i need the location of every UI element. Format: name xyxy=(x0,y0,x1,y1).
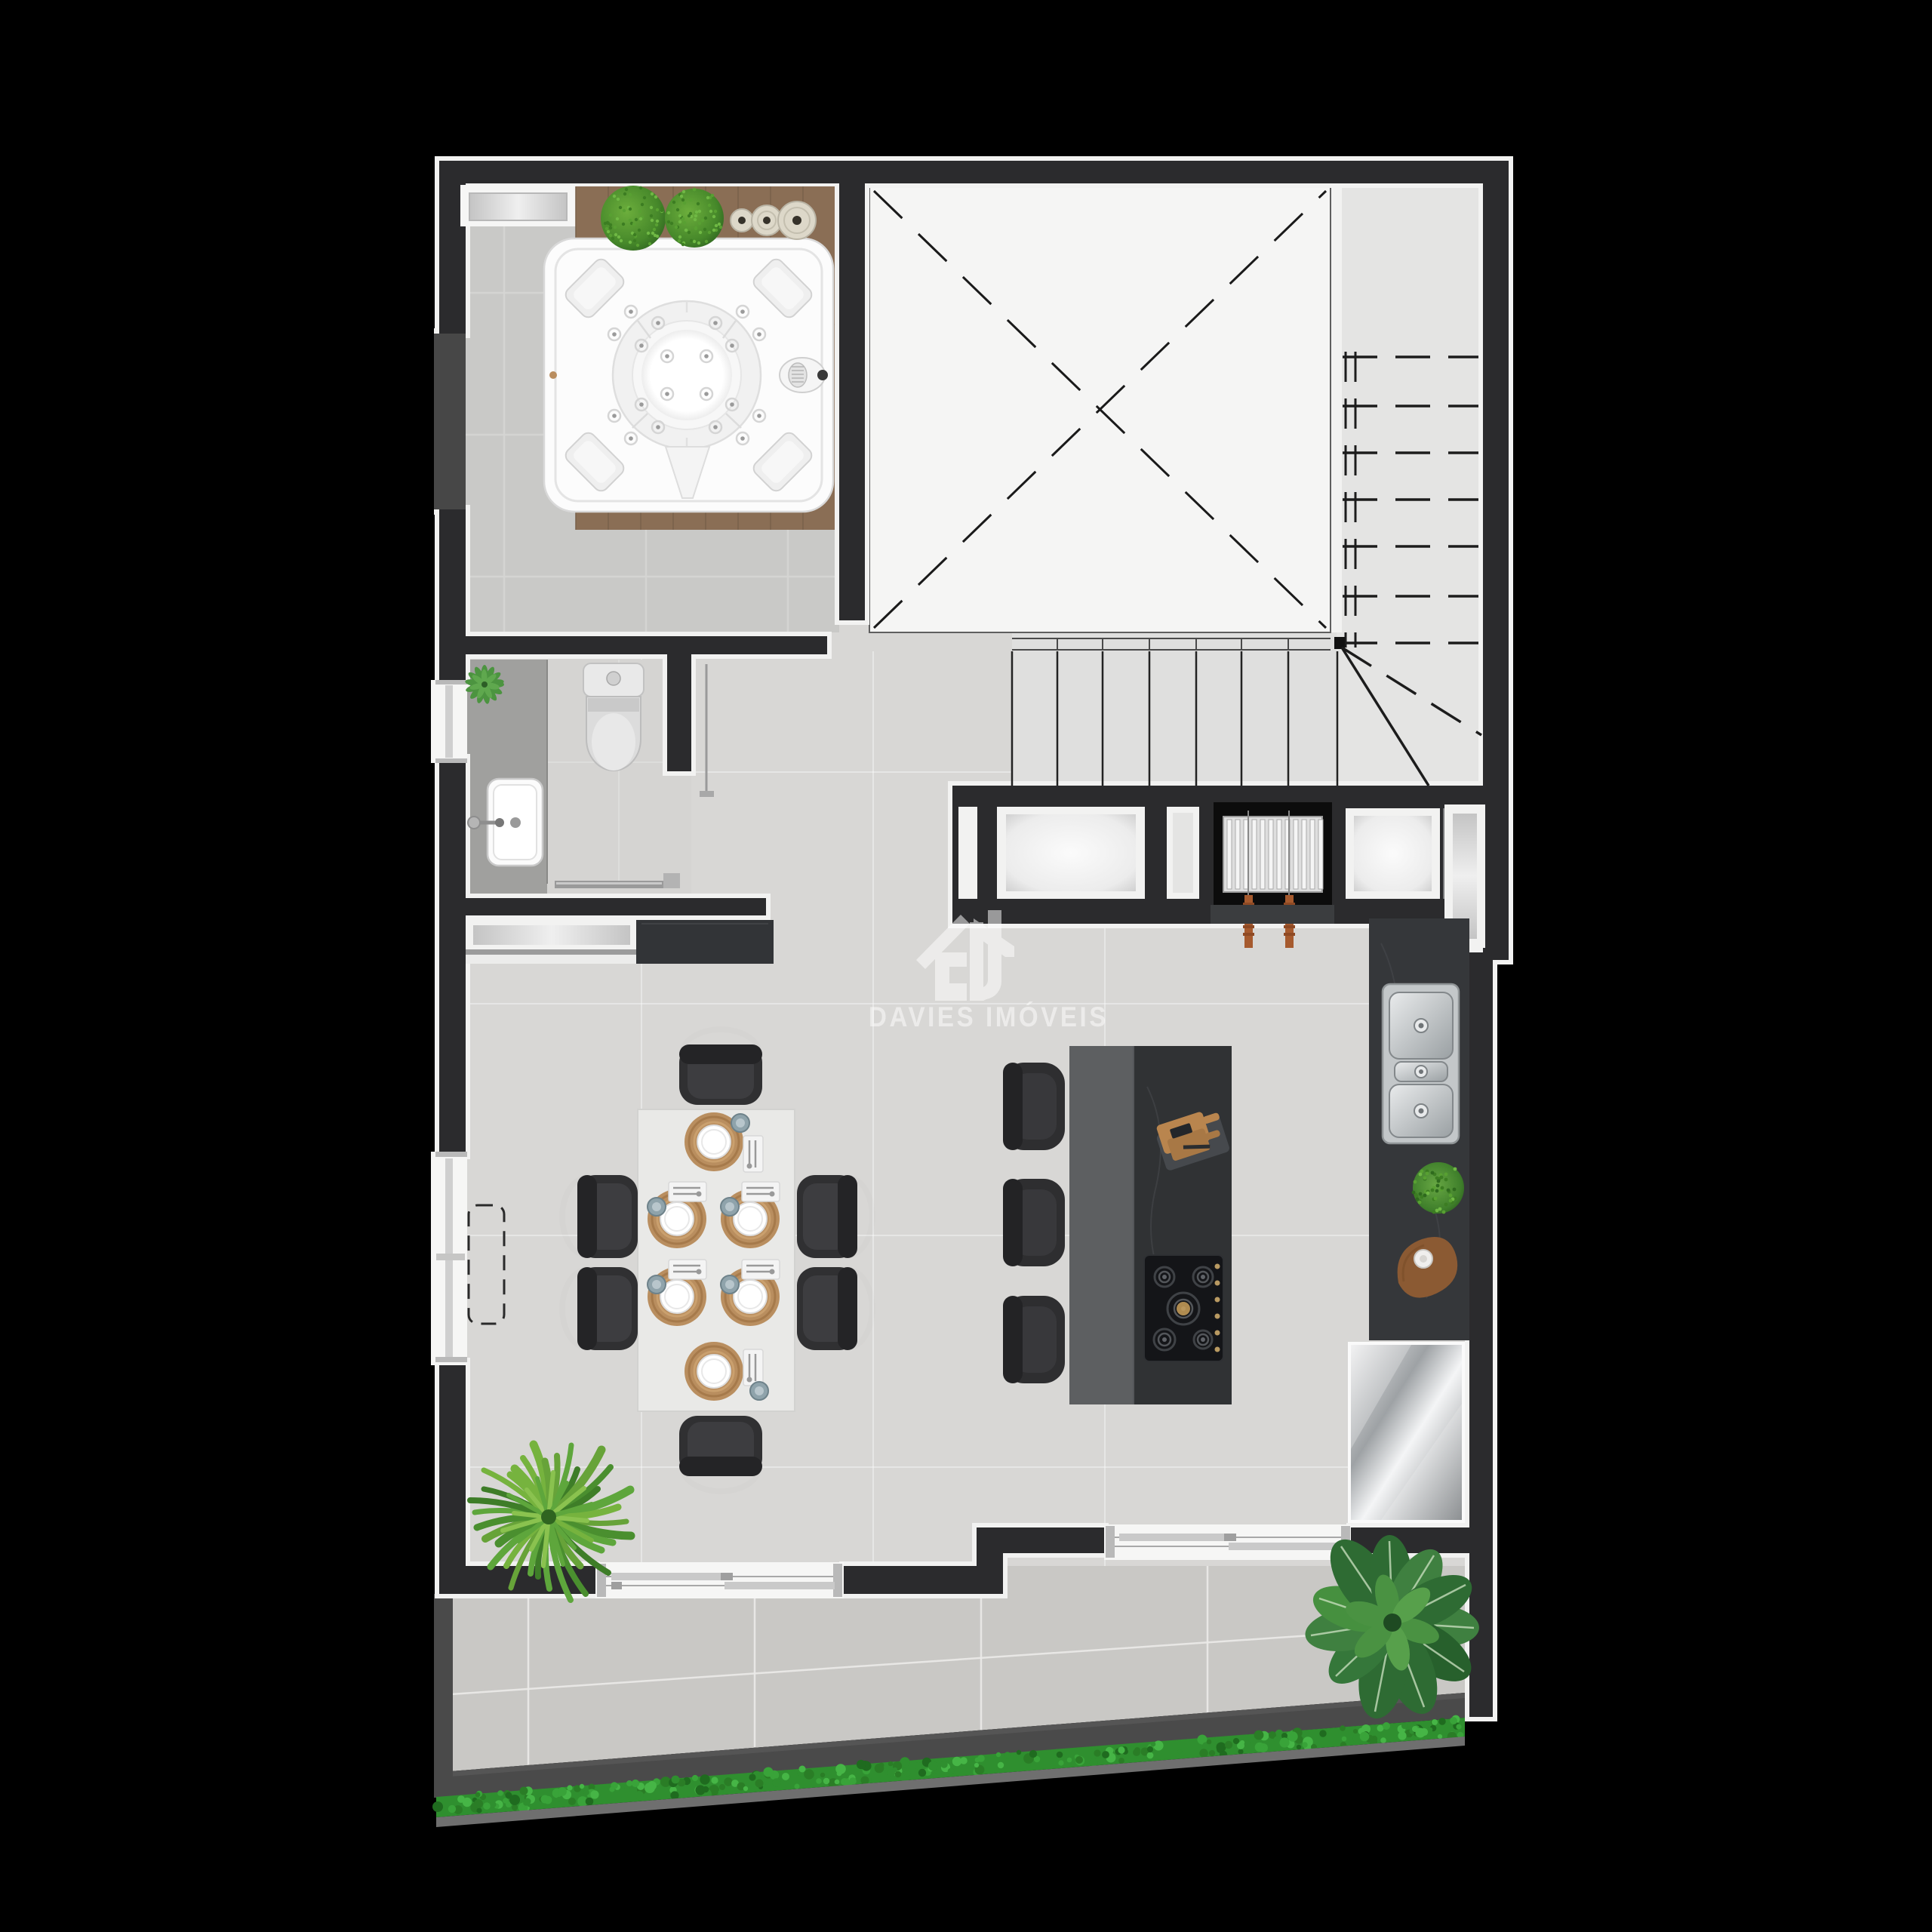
svg-text:DAVIES IMÓVEIS: DAVIES IMÓVEIS xyxy=(869,1001,1109,1032)
